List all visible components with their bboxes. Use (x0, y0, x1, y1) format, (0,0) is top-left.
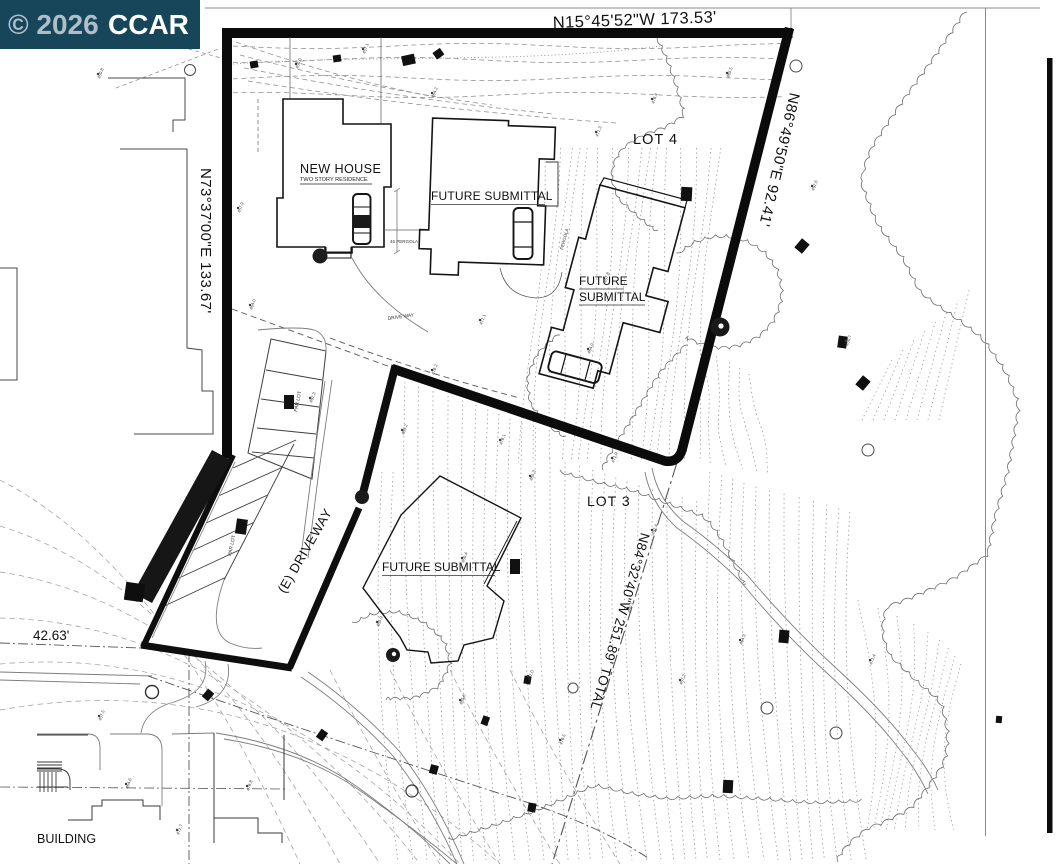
svg-text:N73°37'00"E 133.67': N73°37'00"E 133.67' (197, 168, 214, 314)
svg-text:LOT 3: LOT 3 (587, 493, 631, 509)
svg-text:BUILDING: BUILDING (37, 832, 96, 846)
svg-text:TWO STORY RESIDENCE: TWO STORY RESIDENCE (300, 177, 368, 183)
svg-text:CCAR: CCAR (108, 9, 189, 40)
svg-text:NEW HOUSE: NEW HOUSE (300, 162, 381, 176)
svg-text:42.63': 42.63' (33, 628, 69, 643)
svg-text:FUTURE SUBMITTAL: FUTURE SUBMITTAL (382, 560, 501, 574)
svg-text:SUBMITTAL: SUBMITTAL (579, 290, 646, 304)
svg-text:LOT 4: LOT 4 (633, 132, 678, 148)
svg-text:© 2026: © 2026 (8, 9, 99, 40)
svg-text:FUTURE SUBMITTAL: FUTURE SUBMITTAL (431, 189, 553, 203)
svg-text:46 PERGOLA: 46 PERGOLA (390, 239, 418, 244)
